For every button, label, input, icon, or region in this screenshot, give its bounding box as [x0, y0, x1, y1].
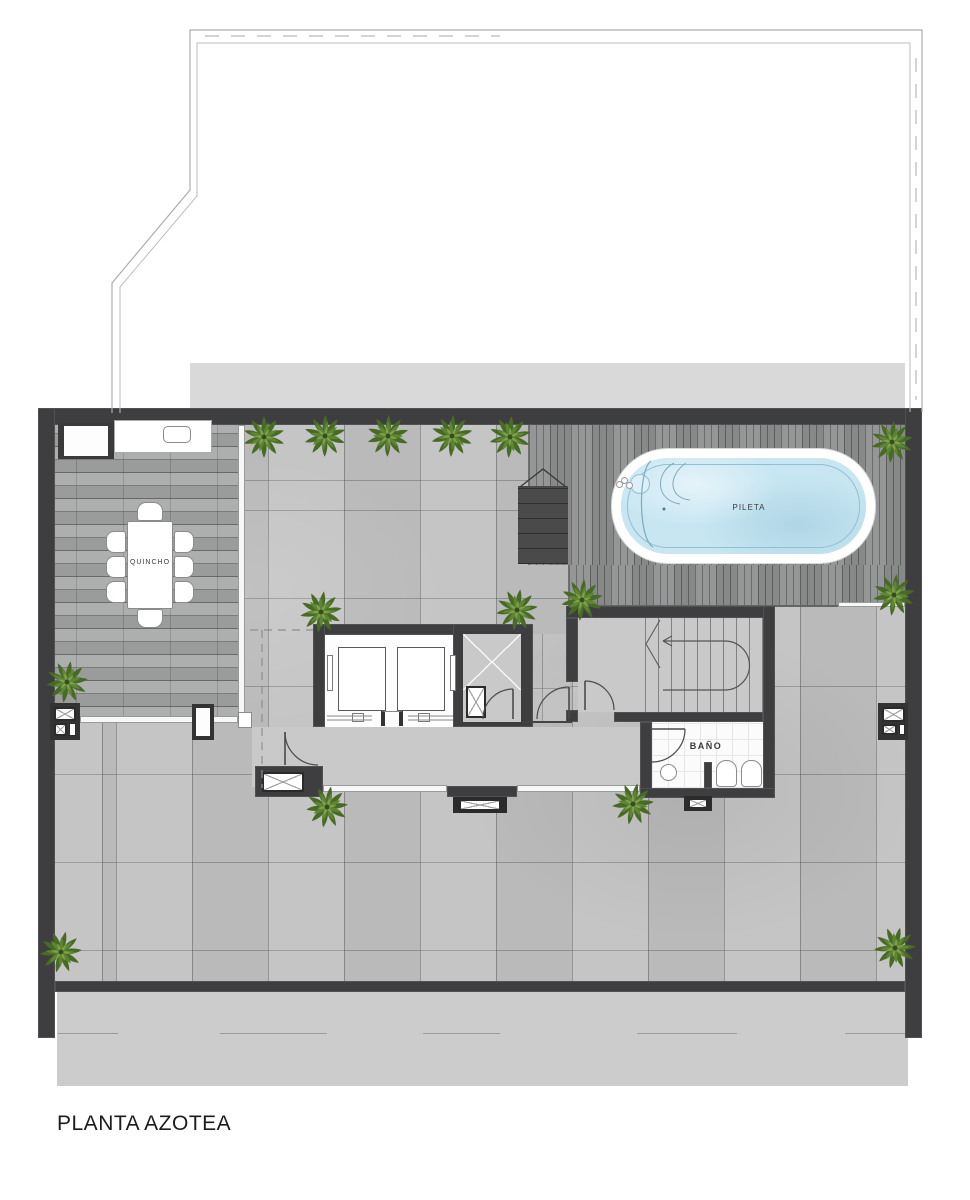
quincho-storage-box [58, 423, 114, 459]
stairs-treads [645, 618, 763, 712]
pool-bubble [626, 482, 633, 489]
quincho-chair [106, 531, 126, 553]
wall-bottom [55, 981, 905, 992]
stairs-wall-bottom [614, 712, 763, 722]
plant-icon [872, 925, 918, 971]
terrace-gap [533, 634, 570, 722]
stairs-wall-left [566, 710, 578, 722]
floor-plan-canvas: QUINCHO PILETA BAÑO PLANTA AZOTEA [0, 0, 970, 1200]
plant-icon [559, 577, 605, 623]
pool-spa [630, 474, 650, 494]
railing-post [192, 704, 214, 740]
quincho-chair [106, 581, 126, 603]
elevator-door-sill [352, 713, 364, 722]
shaft-vent [466, 686, 486, 718]
corridor-entry-vent [262, 772, 304, 792]
plant-icon [871, 572, 917, 618]
elevator-shaft [463, 634, 521, 690]
quincho-chair [137, 502, 163, 521]
bathroom-vent [688, 798, 708, 809]
corridor-vent [459, 799, 501, 811]
vent-box [882, 724, 897, 735]
pool-deck-steps [518, 486, 568, 564]
railing-end-cap [238, 712, 252, 728]
apron-joint [423, 1033, 500, 1034]
bathroom-sink [660, 764, 677, 781]
apron [57, 991, 908, 1086]
vent-box [54, 707, 76, 721]
elevator-car-1 [338, 647, 386, 711]
bano-label: BAÑO [676, 741, 736, 751]
plan-title: PLANTA AZOTEA [57, 1112, 231, 1136]
plant-icon [44, 659, 90, 705]
apron-joint [637, 1033, 737, 1034]
plant-icon [241, 414, 287, 460]
vent-box [54, 723, 67, 736]
quincho-chair [137, 609, 163, 628]
counter-sink [163, 426, 191, 443]
elevator-room-wall [313, 624, 325, 727]
plant-icon [304, 784, 350, 830]
slab-band [190, 363, 905, 412]
vent-box [69, 723, 76, 736]
quincho-chair [174, 531, 194, 553]
elevator-door-sill [418, 713, 430, 722]
elevator-lobby-niche [381, 711, 403, 726]
quincho-label: QUINCHO [110, 559, 190, 566]
plant-icon [494, 587, 540, 633]
quincho-chair [174, 581, 194, 603]
plant-icon [487, 414, 533, 460]
plant-icon [429, 413, 475, 459]
glass-railing-horizontal [80, 716, 238, 723]
plant-icon [365, 413, 411, 459]
elevator-rail [327, 655, 333, 691]
stairs-wall-right [763, 606, 775, 798]
pileta-label: PILETA [714, 503, 784, 512]
plant-icon [38, 929, 84, 975]
plant-icon [610, 781, 656, 827]
pool-deck [568, 565, 905, 607]
vent-box [882, 707, 905, 722]
apron-joint [845, 1033, 905, 1034]
apron-joint [58, 1033, 118, 1034]
plant-icon [298, 589, 344, 635]
bathroom-partition [704, 762, 712, 788]
plant-icon [302, 413, 348, 459]
plant-icon [869, 419, 915, 465]
stairs-wall-left [566, 618, 578, 682]
corridor-vent-wall [447, 786, 517, 797]
toilet [716, 760, 737, 787]
elevator-car-2 [397, 647, 445, 711]
vent-box [899, 724, 905, 735]
elevator-rail [450, 655, 456, 691]
toilet [741, 760, 762, 787]
apron-joint [220, 1033, 327, 1034]
glass-railing-vertical [238, 425, 245, 718]
